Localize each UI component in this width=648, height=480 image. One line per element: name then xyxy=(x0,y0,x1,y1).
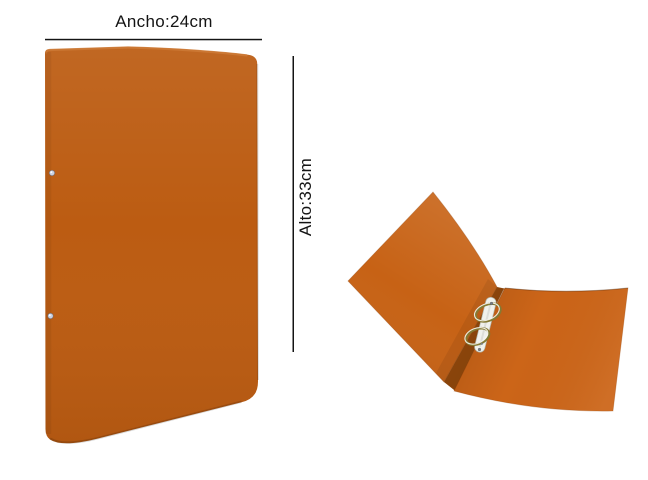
closed-binder-cover-shading xyxy=(45,47,258,443)
mechanism-screw-bottom xyxy=(478,348,481,351)
product-diagram: Ancho:24cm Alto:33cm xyxy=(0,0,648,480)
closed-binder-spine-shade xyxy=(45,52,51,434)
rivet-top xyxy=(49,170,54,175)
mechanism-screw-mid xyxy=(481,343,483,345)
mechanism-screw-top xyxy=(490,302,493,305)
width-dimension-line xyxy=(45,39,262,41)
binder-artwork xyxy=(0,0,648,480)
closed-binder-right-edge-shade xyxy=(257,64,258,380)
height-dimension-line xyxy=(293,56,295,352)
width-dimension-label: Ancho:24cm xyxy=(115,12,213,32)
height-dimension-label: Alto:33cm xyxy=(296,158,316,236)
open-binder-view xyxy=(348,192,628,411)
closed-binder-front-view xyxy=(45,47,258,443)
rivet-bottom xyxy=(48,313,53,318)
